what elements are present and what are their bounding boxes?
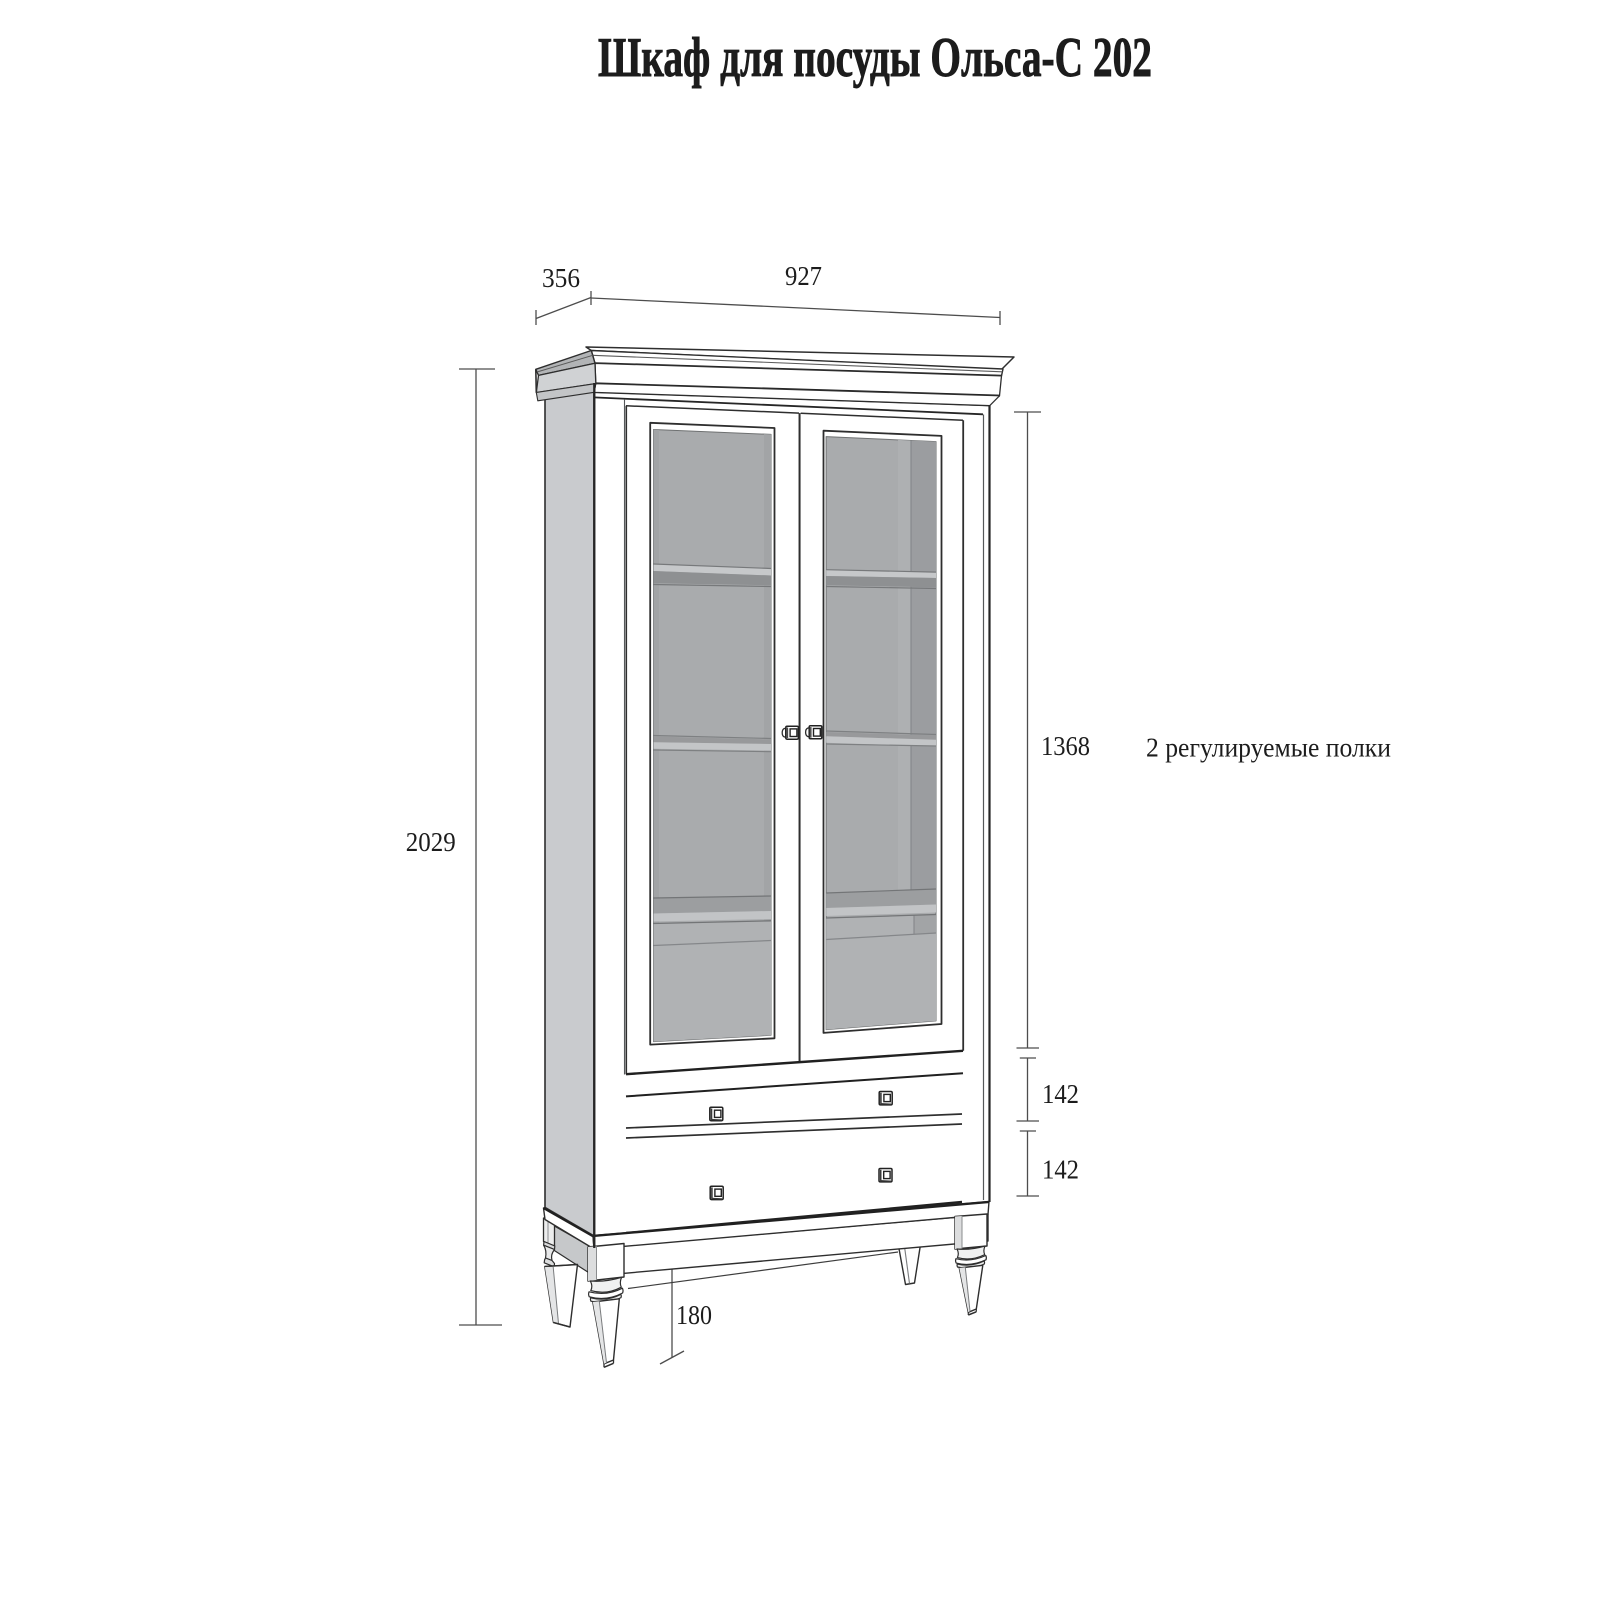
svg-text:927: 927 xyxy=(785,261,822,291)
svg-text:2 регулируемые полки: 2 регулируемые полки xyxy=(1146,733,1391,763)
svg-text:1368: 1368 xyxy=(1041,731,1090,761)
svg-text:180: 180 xyxy=(676,1300,712,1330)
svg-text:356: 356 xyxy=(542,263,580,293)
svg-text:Шкаф для посуды Ольса-С 202: Шкаф для посуды Ольса-С 202 xyxy=(598,27,1152,89)
svg-text:2029: 2029 xyxy=(406,827,456,857)
svg-text:142: 142 xyxy=(1042,1155,1079,1185)
svg-text:142: 142 xyxy=(1042,1079,1079,1109)
